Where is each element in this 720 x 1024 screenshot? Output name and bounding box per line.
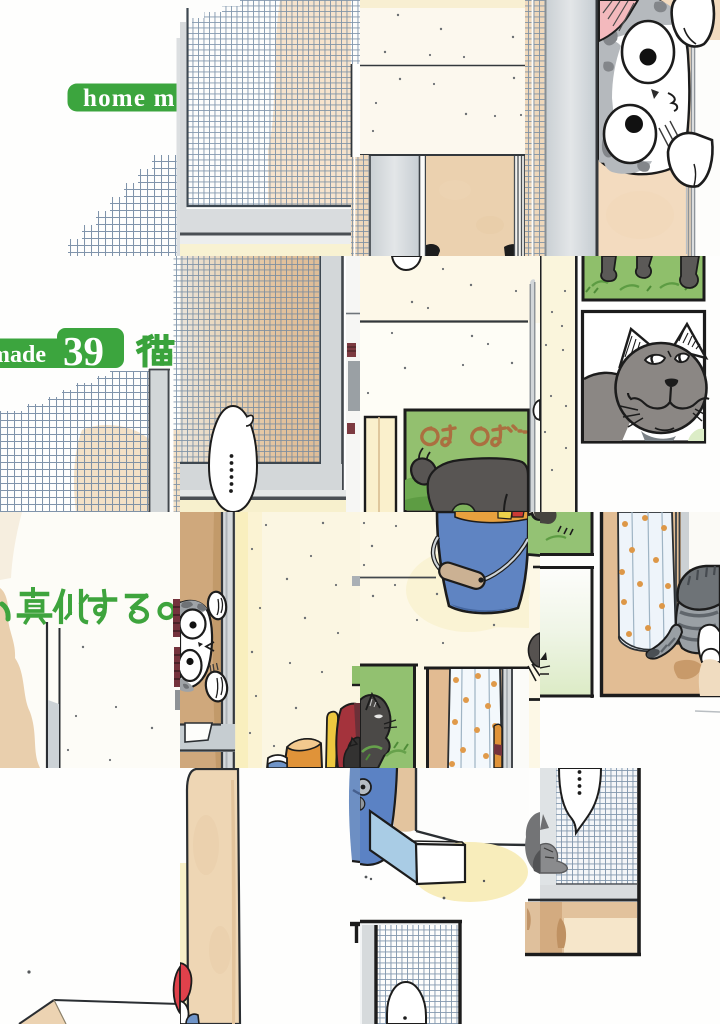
svg-text:home m: home m: [83, 85, 176, 112]
svg-text:made: made: [0, 342, 46, 368]
svg-text:39: 39: [63, 328, 104, 374]
